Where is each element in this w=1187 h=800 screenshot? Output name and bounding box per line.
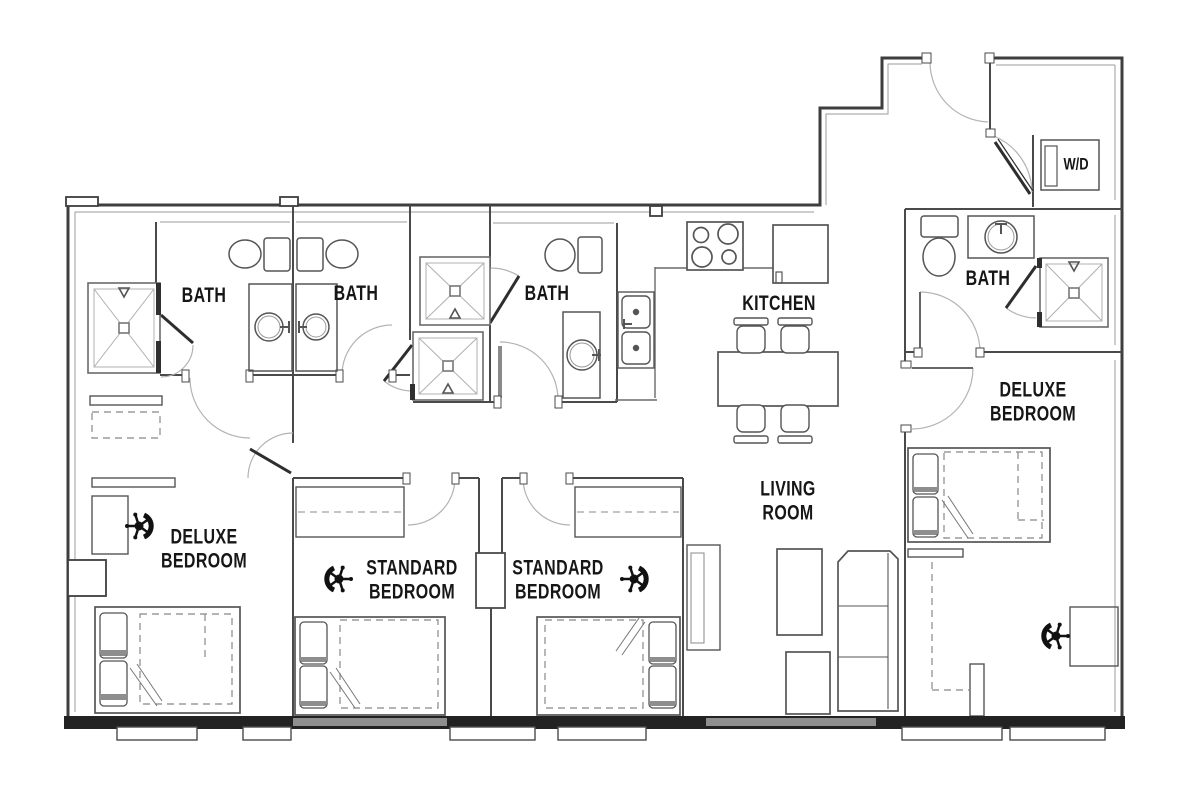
desk-icon-deluxe-right [1070, 607, 1118, 666]
coffee-table-icon [777, 549, 822, 635]
room-label-deluxe-bedroom-left: DELUXE BEDROOM [159, 525, 249, 572]
ottoman-icon [786, 652, 830, 714]
desk-chair-icon-standard-1 [327, 566, 353, 593]
wall-column [476, 553, 505, 608]
room-label-bath-1: BATH [182, 284, 227, 308]
desk-icon-standard-2 [575, 487, 681, 537]
desk-chair-icon-deluxe-right [1044, 623, 1070, 650]
room-label-deluxe-bedroom-right: DELUXE BEDROOM [988, 378, 1078, 425]
stove-icon [687, 222, 743, 270]
outer-walls [68, 58, 1122, 718]
sofa-icon [838, 551, 898, 711]
room-label-living-room: LIVING ROOM [752, 477, 823, 524]
bath-inner-wall-lines [160, 222, 614, 223]
shower-icon-a [420, 257, 490, 325]
room-label-kitchen: KITCHEN [742, 292, 816, 316]
closet-shelves-left [90, 396, 175, 487]
kitchen-sink-icon [618, 292, 654, 368]
bed-icon-standard-2 [537, 617, 680, 715]
desk-chair-icon-deluxe-left [125, 513, 151, 540]
bed-icon-standard-1 [295, 617, 445, 715]
shower-icon-bath4 [1037, 258, 1108, 327]
room-label-washer-dryer: W/D [1063, 154, 1088, 173]
closet-deluxe-right [908, 549, 984, 716]
dining-table-icon [718, 352, 838, 406]
window-glass [293, 718, 447, 726]
media-console-icon [687, 545, 720, 650]
room-label-standard-bedroom-2: STANDARD BEDROOM [506, 556, 609, 603]
room-label-bath-4: BATH [966, 267, 1011, 291]
closet-dashed-left [92, 412, 160, 438]
refrigerator-icon [773, 225, 828, 283]
desk-icon-deluxe-left [92, 496, 128, 554]
bed-icon-deluxe-right [908, 448, 1050, 542]
shower-icon-b [410, 332, 483, 400]
bed-icon-deluxe-left [95, 607, 240, 713]
room-label-standard-bedroom-1: STANDARD BEDROOM [360, 556, 463, 603]
sink-icons [249, 216, 1034, 398]
room-label-bath-2: BATH [334, 282, 379, 306]
window-glass [706, 718, 876, 726]
floor-plan: BATH BATH BATH BATH KITCHEN LIVING ROOM … [0, 0, 1187, 800]
shower-icon-bath1 [88, 283, 161, 373]
toilet-icons [229, 216, 958, 276]
bottom-wall [64, 716, 1125, 740]
room-label-bath-3: BATH [525, 282, 570, 306]
outer-wall-inner-lines [75, 64, 1115, 712]
desk-chair-icon-standard-2 [620, 566, 646, 593]
window-sills [117, 727, 1105, 740]
desk-icon-standard-1 [296, 487, 404, 537]
